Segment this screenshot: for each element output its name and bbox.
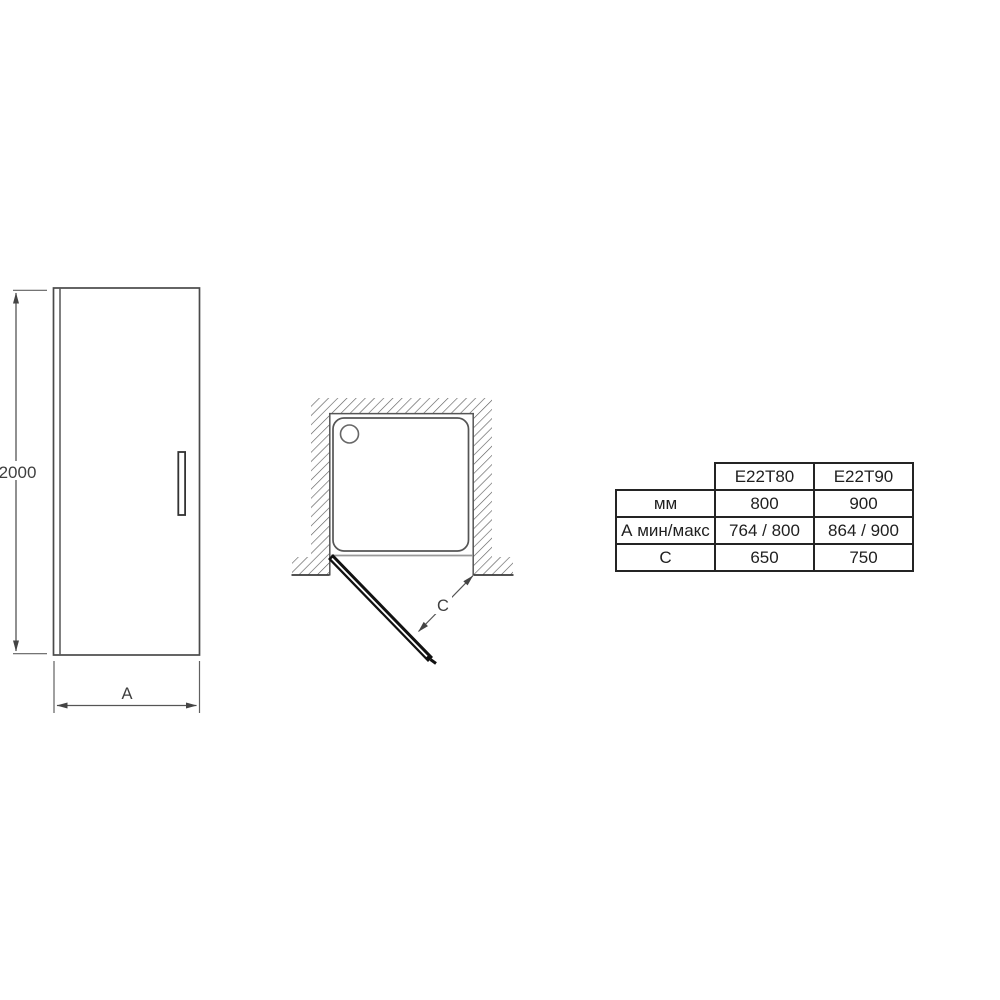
front-view: 2000 A <box>0 288 200 713</box>
depth-dimension-label: C <box>437 597 449 615</box>
cell-mm-model-2: 900 <box>814 490 913 517</box>
width-dimension: A <box>54 661 200 713</box>
table-corner-cell <box>616 463 715 490</box>
spec-table: E22T80 E22T90 мм 800 900 А мин/макс 764 … <box>615 462 914 572</box>
cell-a-model-2: 864 / 900 <box>814 517 913 544</box>
col-header-model-1: E22T80 <box>715 463 814 490</box>
cell-c-model-2: 750 <box>814 544 913 571</box>
height-dimension: 2000 <box>0 290 47 653</box>
door-end-cap <box>431 660 437 664</box>
table-row-c: С 650 750 <box>616 544 913 571</box>
width-dimension-label: A <box>121 685 132 703</box>
col-header-model-2: E22T90 <box>814 463 913 490</box>
open-door <box>331 557 437 664</box>
row-label-a-minmax: А мин/макс <box>616 517 715 544</box>
table-row-mm: мм 800 900 <box>616 490 913 517</box>
cell-a-model-1: 764 / 800 <box>715 517 814 544</box>
cell-c-model-1: 650 <box>715 544 814 571</box>
cell-mm-model-1: 800 <box>715 490 814 517</box>
row-label-mm: мм <box>616 490 715 517</box>
height-dimension-label: 2000 <box>0 463 36 482</box>
row-label-c: С <box>616 544 715 571</box>
drain-circle <box>341 425 359 443</box>
depth-dimension: C <box>419 576 473 632</box>
table-header-row: E22T80 E22T90 <box>616 463 913 490</box>
door-handle <box>178 452 185 515</box>
table-row-a-minmax: А мин/макс 764 / 800 864 / 900 <box>616 517 913 544</box>
plan-view: C <box>292 398 514 664</box>
product-dimension-diagram: 2000 A <box>0 0 1000 1000</box>
door-swing-panel-core <box>332 559 427 657</box>
